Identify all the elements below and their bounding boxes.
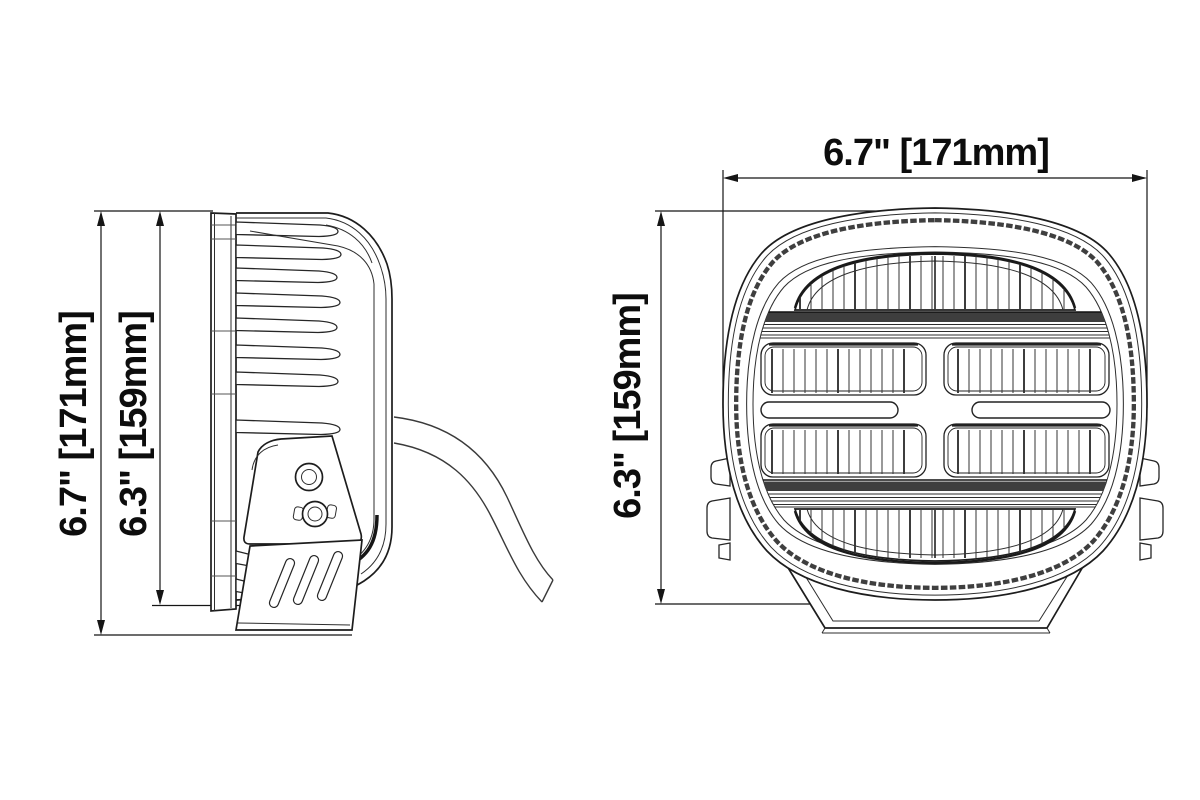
drawing-canvas: 6.7" [171mm] 6.3" [159mm] — [0, 0, 1200, 800]
mounting-bracket — [236, 436, 362, 630]
arrowhead-icon — [723, 174, 738, 182]
power-cable — [394, 417, 553, 602]
side-view: 6.7" [171mm] 6.3" [159mm] — [53, 211, 553, 635]
arrowhead-icon — [97, 211, 105, 226]
front-width-dimension-label: 6.7" [171mm] — [823, 132, 1049, 174]
arrowhead-icon — [657, 211, 665, 226]
heatsink-backplate — [211, 213, 236, 611]
arrowhead-icon — [156, 211, 164, 226]
front-view: 6.7" [171mm] 6.3" [159mm] — [607, 132, 1163, 633]
bracket-plate — [244, 436, 361, 544]
arrowhead-icon — [156, 590, 164, 605]
bracket-knob — [296, 464, 323, 491]
side-outer-dimension-label: 6.7" [171mm] — [53, 311, 95, 537]
technical-drawing: 6.7" [171mm] 6.3" [159mm] — [0, 0, 1200, 800]
side-inner-dimension-label: 6.3" [159mm] — [113, 311, 155, 537]
arrowhead-icon — [657, 589, 665, 604]
arrowhead-icon — [1132, 174, 1147, 182]
front-height-dimension-label: 6.3" [159mm] — [607, 293, 649, 519]
arrowhead-icon — [97, 620, 105, 635]
